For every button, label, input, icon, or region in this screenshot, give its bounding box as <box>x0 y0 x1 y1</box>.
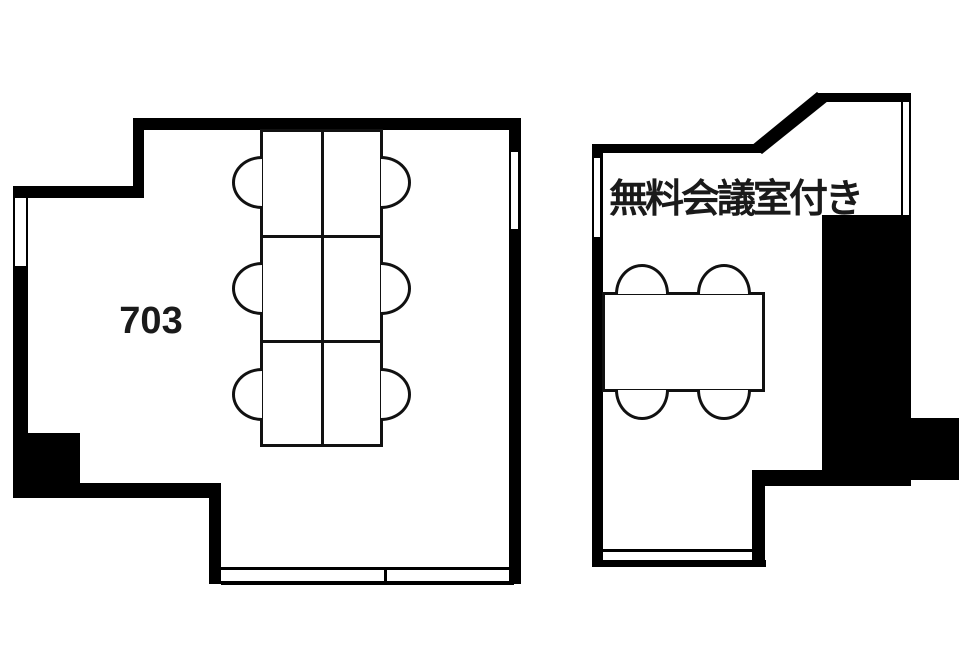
meeting-lowerright-vertical-wall <box>752 470 765 567</box>
meeting-left-window <box>593 157 601 238</box>
meeting-room-caption: 無料会議室付き <box>609 168 861 224</box>
floor-plan: 703 無料会議室付き <box>0 0 979 651</box>
meeting-right-window <box>901 102 911 216</box>
meeting-bottom-window-top-line <box>603 549 752 552</box>
meeting-lower-horizontal-wall <box>752 470 911 486</box>
meeting-right-pillar-block <box>822 215 911 471</box>
meeting-top-wall <box>818 93 911 102</box>
meeting-table <box>602 292 765 392</box>
meeting-right-extension-block <box>911 418 959 480</box>
meeting-bottom-wall <box>592 560 766 567</box>
